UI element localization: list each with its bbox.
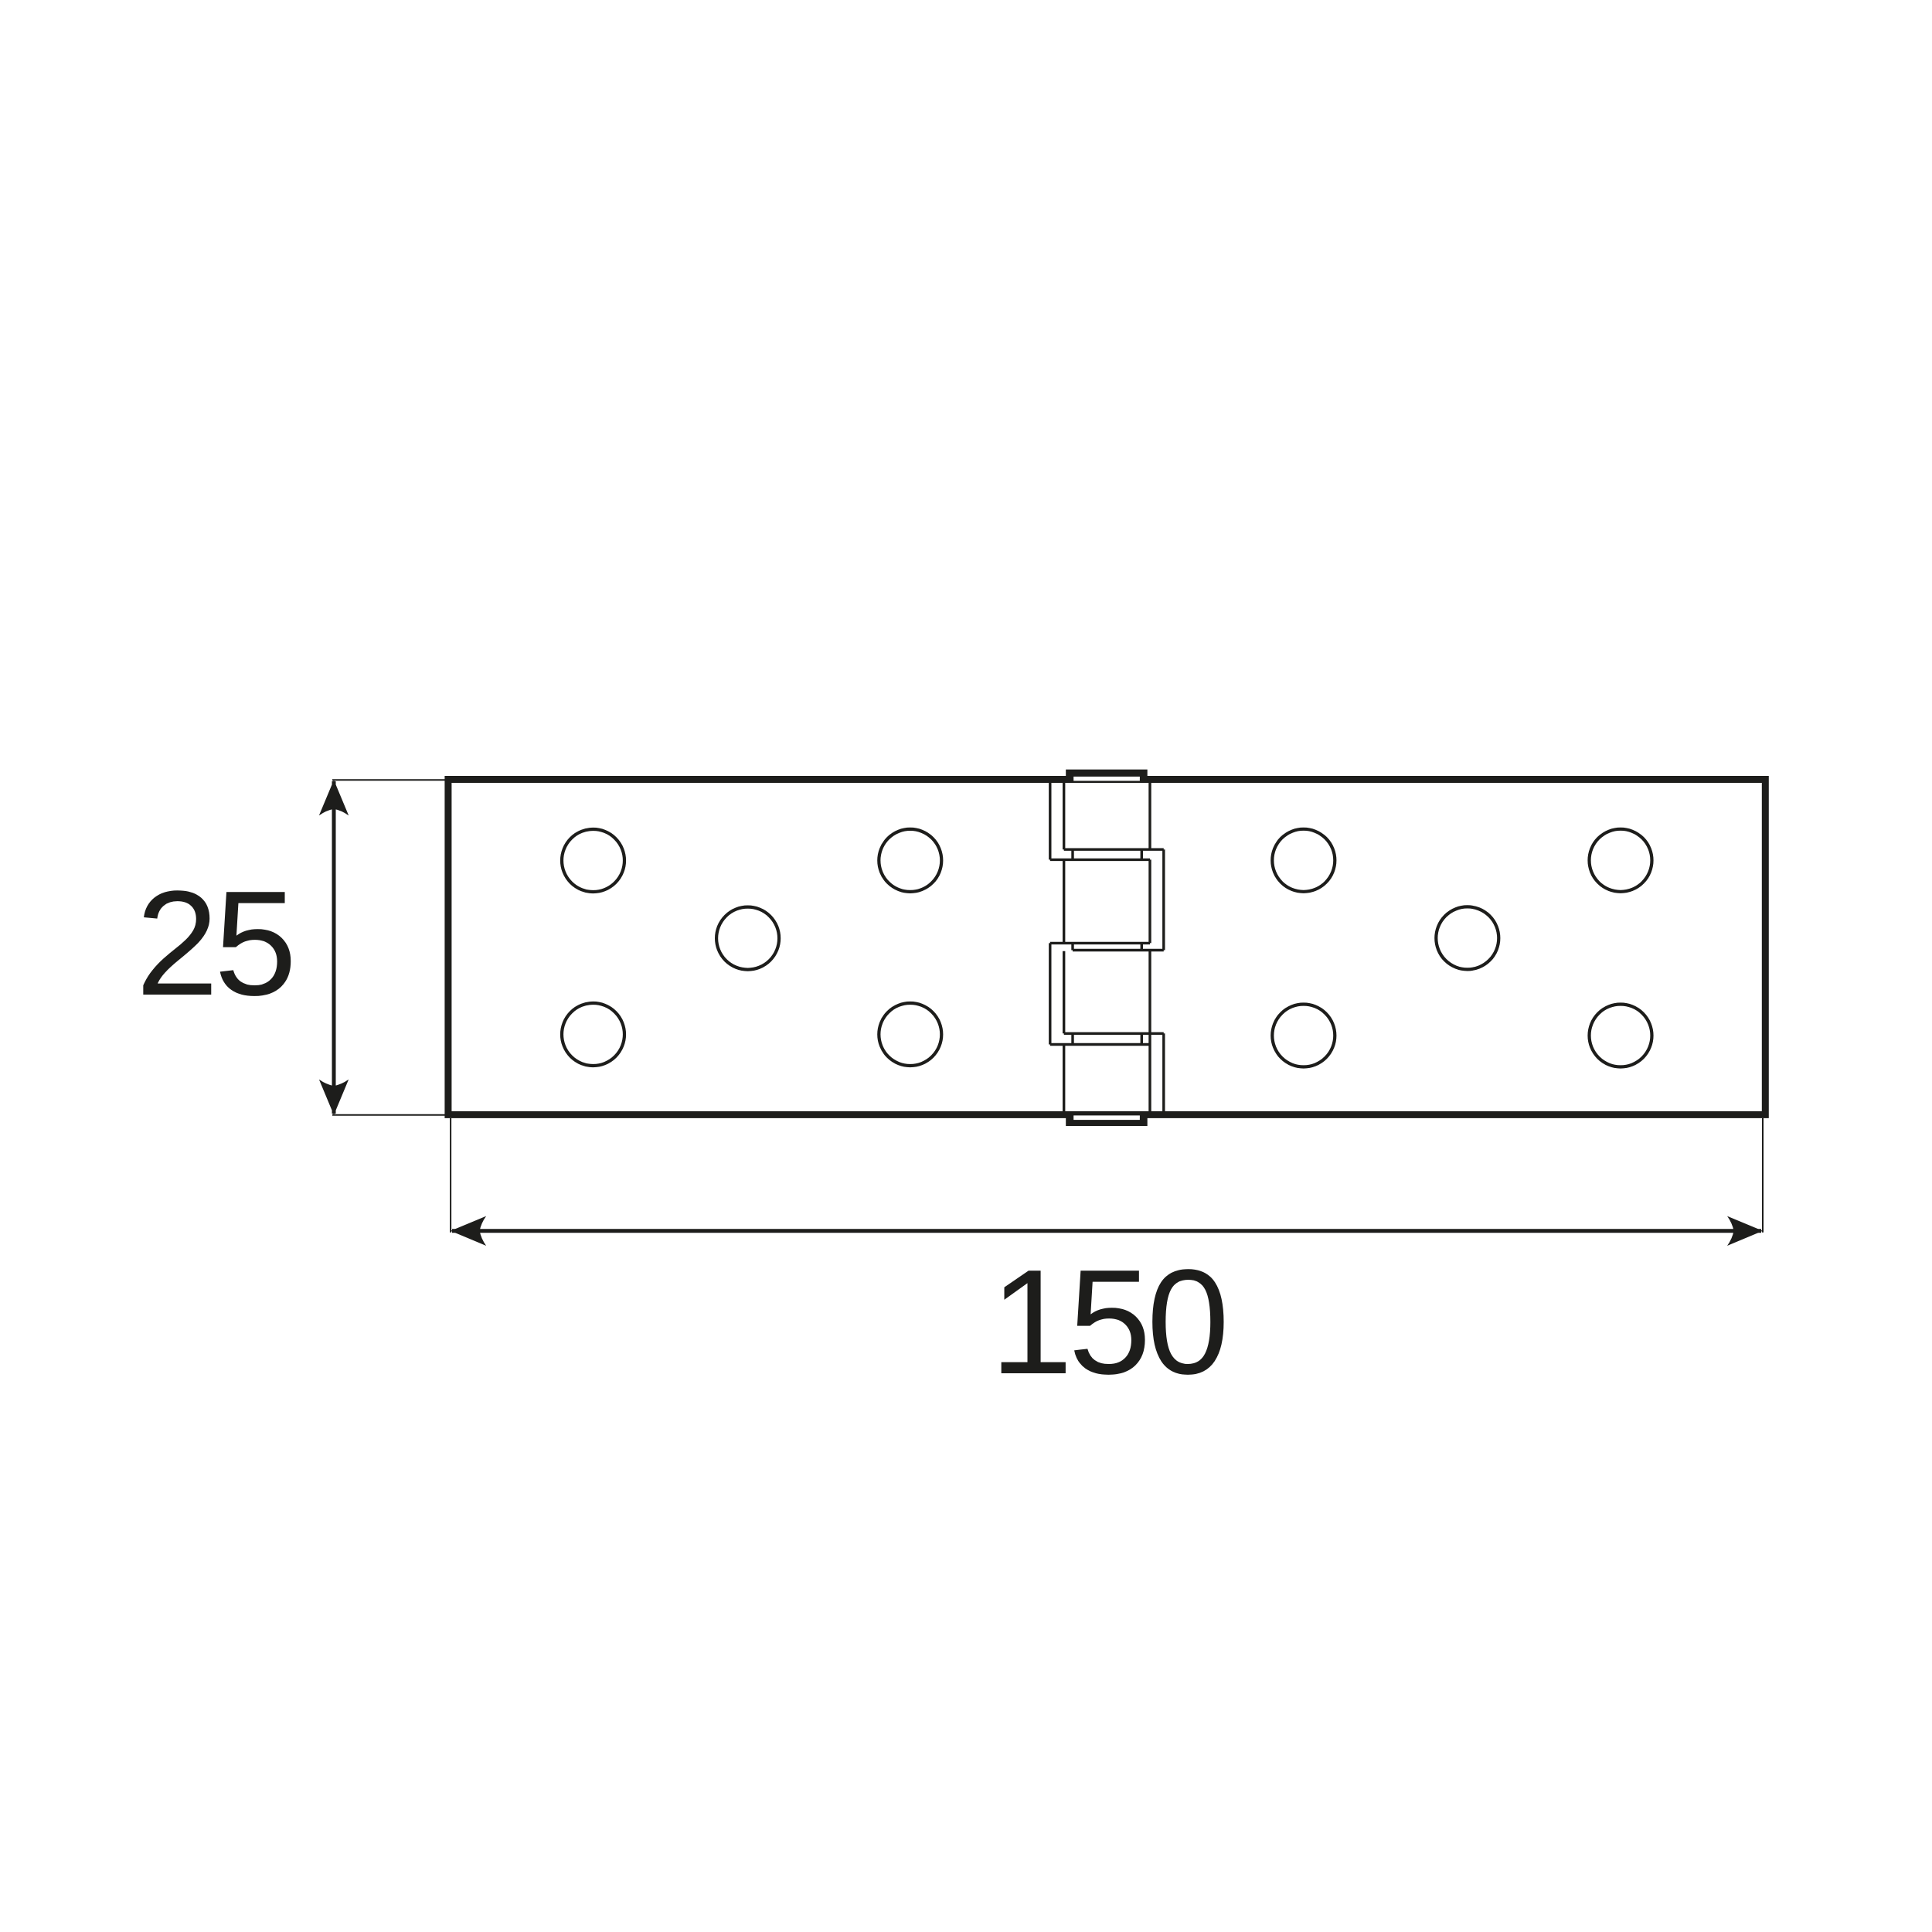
- svg-text:150: 150: [990, 1238, 1225, 1405]
- svg-text:25: 25: [136, 859, 293, 1026]
